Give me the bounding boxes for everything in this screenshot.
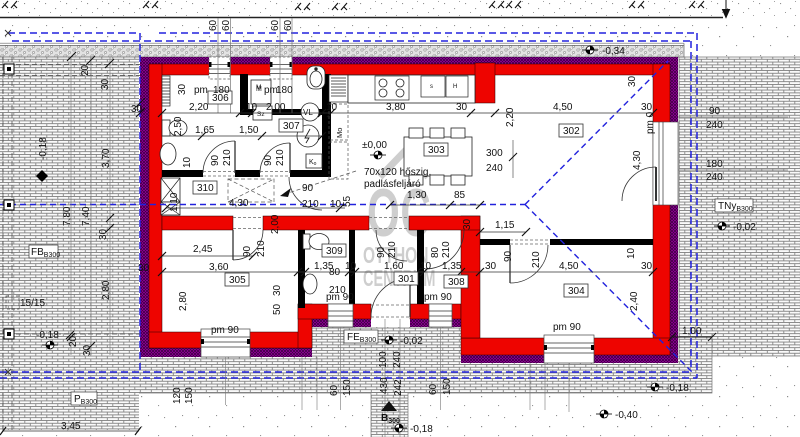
svg-text:20: 20 bbox=[80, 64, 91, 76]
svg-text:1,35: 1,35 bbox=[442, 261, 462, 272]
svg-text:240: 240 bbox=[486, 163, 503, 174]
svg-text:210: 210 bbox=[441, 241, 452, 258]
svg-text:-0,02: -0,02 bbox=[400, 336, 423, 347]
svg-text:85: 85 bbox=[454, 190, 466, 201]
svg-text:2,50: 2,50 bbox=[173, 116, 184, 136]
svg-text:150: 150 bbox=[442, 378, 453, 395]
svg-text:90: 90 bbox=[242, 245, 253, 257]
svg-text:180: 180 bbox=[706, 159, 723, 170]
svg-text:30: 30 bbox=[485, 261, 497, 272]
svg-text:2,80: 2,80 bbox=[178, 291, 189, 311]
svg-text:-0,18: -0,18 bbox=[666, 383, 689, 394]
svg-text:7,80: 7,80 bbox=[62, 206, 73, 226]
svg-text:pm: pm bbox=[194, 85, 208, 96]
svg-text:100: 100 bbox=[378, 351, 389, 368]
svg-text:1,50: 1,50 bbox=[239, 125, 259, 136]
svg-text:pm 90: pm 90 bbox=[424, 292, 452, 303]
svg-text:309: 309 bbox=[326, 246, 343, 257]
svg-text:210: 210 bbox=[531, 251, 542, 268]
svg-text:2,40: 2,40 bbox=[629, 291, 640, 311]
svg-text:2,80: 2,80 bbox=[101, 280, 112, 300]
svg-text:60: 60 bbox=[283, 19, 294, 31]
svg-text:301: 301 bbox=[398, 274, 415, 285]
svg-text:±0,00: ±0,00 bbox=[362, 140, 387, 151]
svg-text:210: 210 bbox=[302, 199, 319, 210]
svg-text:-0,18: -0,18 bbox=[38, 137, 49, 160]
svg-text:30: 30 bbox=[131, 104, 143, 115]
svg-text:pm 90: pm 90 bbox=[553, 322, 581, 333]
svg-text:310: 310 bbox=[197, 183, 214, 194]
svg-text:-0,02: -0,02 bbox=[733, 222, 756, 233]
svg-text:10: 10 bbox=[326, 102, 338, 113]
svg-text:4,30: 4,30 bbox=[632, 150, 643, 170]
svg-text:M: M bbox=[256, 86, 262, 93]
svg-text:4,50: 4,50 bbox=[559, 261, 579, 272]
svg-text:55: 55 bbox=[342, 195, 353, 207]
svg-text:305: 305 bbox=[229, 275, 246, 286]
svg-text:10: 10 bbox=[246, 102, 258, 113]
svg-text:150: 150 bbox=[342, 379, 353, 396]
svg-text:-0,40: -0,40 bbox=[615, 410, 638, 421]
svg-text:308: 308 bbox=[448, 277, 465, 288]
svg-text:-0,34: -0,34 bbox=[602, 46, 625, 57]
svg-text:10: 10 bbox=[330, 199, 342, 210]
svg-text:3,45: 3,45 bbox=[61, 421, 81, 432]
svg-text:50: 50 bbox=[272, 303, 283, 315]
svg-text:10: 10 bbox=[420, 261, 432, 272]
svg-text:90: 90 bbox=[709, 106, 721, 117]
svg-text:210: 210 bbox=[387, 241, 398, 258]
svg-text:210: 210 bbox=[275, 149, 286, 166]
svg-text:10: 10 bbox=[182, 156, 193, 168]
svg-text:Sz: Sz bbox=[257, 111, 265, 118]
svg-text:10: 10 bbox=[626, 247, 637, 259]
svg-text:-0,18: -0,18 bbox=[410, 424, 433, 435]
svg-text:4,50: 4,50 bbox=[553, 102, 573, 113]
svg-text:1,30: 1,30 bbox=[407, 190, 427, 201]
svg-text:1,15: 1,15 bbox=[495, 220, 515, 231]
svg-text:60: 60 bbox=[208, 19, 219, 31]
svg-text:-0,18: -0,18 bbox=[36, 330, 59, 341]
svg-text:pm 90: pm 90 bbox=[326, 292, 354, 303]
svg-text:90: 90 bbox=[376, 246, 387, 258]
svg-text:300: 300 bbox=[486, 148, 503, 159]
svg-text:80: 80 bbox=[329, 267, 341, 278]
svg-text:Ko: Ko bbox=[309, 159, 317, 167]
svg-text:120: 120 bbox=[172, 387, 183, 404]
svg-text:30: 30 bbox=[100, 78, 111, 90]
svg-text:3,80: 3,80 bbox=[386, 102, 406, 113]
svg-text:H: H bbox=[453, 84, 457, 90]
svg-text:90: 90 bbox=[263, 154, 274, 166]
svg-text:60: 60 bbox=[221, 19, 232, 31]
svg-text:1,60: 1,60 bbox=[384, 261, 404, 272]
svg-text:90: 90 bbox=[503, 250, 514, 262]
svg-text:240: 240 bbox=[706, 120, 723, 131]
svg-text:150: 150 bbox=[184, 387, 195, 404]
svg-text:3,60: 3,60 bbox=[209, 262, 229, 273]
svg-text:2,20: 2,20 bbox=[189, 102, 209, 113]
svg-text:430: 430 bbox=[379, 377, 390, 394]
svg-text:1,00: 1,00 bbox=[682, 326, 702, 337]
svg-text:2,00: 2,00 bbox=[270, 214, 281, 234]
svg-text:60: 60 bbox=[428, 383, 439, 395]
svg-text:60: 60 bbox=[329, 384, 340, 396]
svg-text:1,65: 1,65 bbox=[195, 125, 215, 136]
svg-text:60: 60 bbox=[270, 19, 281, 31]
svg-text:30: 30 bbox=[641, 261, 653, 272]
svg-text:30: 30 bbox=[627, 75, 638, 87]
svg-text:242: 242 bbox=[393, 379, 404, 396]
svg-text:30: 30 bbox=[456, 102, 468, 113]
svg-text:pm 90: pm 90 bbox=[211, 325, 239, 336]
svg-text:307: 307 bbox=[283, 121, 300, 132]
svg-text:2,45: 2,45 bbox=[193, 244, 213, 255]
svg-text:30: 30 bbox=[138, 263, 150, 274]
svg-text:302: 302 bbox=[563, 126, 580, 137]
svg-text:30: 30 bbox=[641, 102, 653, 113]
svg-text:VL: VL bbox=[303, 108, 313, 117]
svg-text:3,70: 3,70 bbox=[101, 148, 112, 168]
svg-text:240: 240 bbox=[392, 351, 403, 368]
svg-text:pm 0: pm 0 bbox=[645, 111, 656, 134]
svg-text:1,10: 1,10 bbox=[169, 192, 180, 212]
svg-text:210: 210 bbox=[222, 149, 233, 166]
svg-text:2,00: 2,00 bbox=[266, 102, 286, 113]
svg-text:210: 210 bbox=[256, 240, 267, 257]
svg-text:2,20: 2,20 bbox=[505, 107, 516, 127]
svg-text:80: 80 bbox=[430, 246, 441, 258]
svg-text:4,30: 4,30 bbox=[229, 198, 249, 209]
svg-text:10: 10 bbox=[345, 261, 357, 272]
svg-text:15/15: 15/15 bbox=[20, 298, 45, 309]
svg-text:90: 90 bbox=[210, 154, 221, 166]
svg-text:20: 20 bbox=[68, 335, 79, 347]
svg-text:7,40: 7,40 bbox=[81, 206, 92, 226]
svg-text:30: 30 bbox=[462, 218, 473, 230]
svg-text:Mo: Mo bbox=[335, 128, 344, 138]
svg-text:240: 240 bbox=[706, 172, 723, 183]
svg-text:30: 30 bbox=[177, 83, 188, 95]
svg-text:304: 304 bbox=[568, 286, 585, 297]
svg-text:303: 303 bbox=[428, 145, 445, 156]
svg-text:70x120 hőszig.: 70x120 hőszig. bbox=[364, 167, 431, 178]
svg-text:180: 180 bbox=[276, 85, 293, 96]
svg-text:30: 30 bbox=[272, 284, 283, 296]
svg-text:padlásfeljáró: padlásfeljáró bbox=[364, 179, 421, 190]
svg-text:180: 180 bbox=[213, 85, 230, 96]
svg-text:90: 90 bbox=[302, 183, 314, 194]
svg-text:s: s bbox=[430, 84, 433, 90]
